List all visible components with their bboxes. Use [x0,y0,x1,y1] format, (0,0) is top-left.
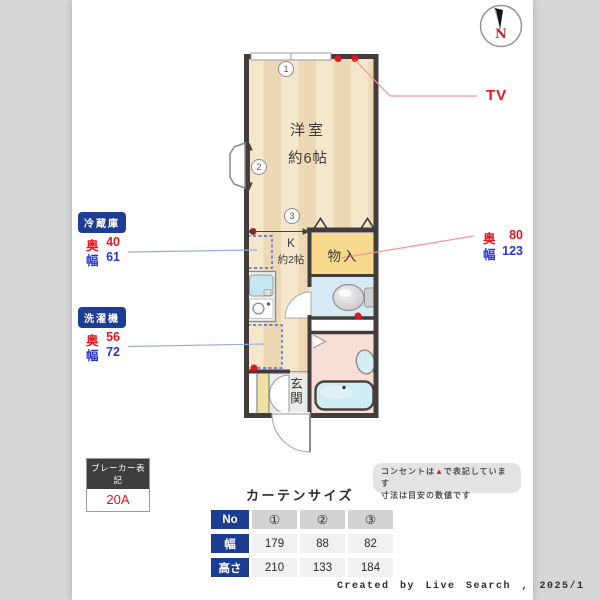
entry-door [272,412,310,452]
bathtub-fixture [316,382,374,410]
breaker-title: ブレーカー表記 [87,459,149,489]
western-room-label: 洋室 [268,119,348,140]
note-line-2: 寸法は目安の数値です [381,490,513,502]
table-cell: 88 [300,534,345,553]
faucet-icon [264,290,271,296]
table-cell: ① [252,510,297,529]
table-row-header: 幅 [211,534,249,553]
breaker-box: ブレーカー表記 20A [86,458,150,512]
table-cell: 133 [300,558,345,577]
compass-north-label: N [493,27,509,42]
entrance-label: 玄関 [286,377,305,406]
table-cell: ② [300,510,345,529]
fridge-width-label: 幅 [86,250,99,269]
fridge-width-value: 61 [106,250,120,269]
tv-callout-label: TV [486,87,507,104]
kitchen-label: K [271,238,311,250]
curtain-table-title: カーテンサイズ [230,485,370,504]
storage-width-row: 幅 123 [483,244,523,263]
window-marker-3: 3 [284,208,300,224]
toilet-fixture [333,285,377,311]
storage-width-label: 幅 [483,244,496,263]
table-cell: 179 [252,534,297,553]
window-marker-1: 1 [278,61,294,77]
washer-width-row: 幅 72 [86,345,120,364]
washer-width-label: 幅 [86,345,99,364]
table-cell: 210 [252,558,297,577]
storage-width-value: 123 [502,244,523,263]
storage-label: 物入 [311,245,375,265]
stove-burner-icon [253,303,264,314]
outlet-note: コンセントは▲で表記しています 寸法は目安の数値です [373,463,521,493]
washer-badge: 洗濯機 [78,307,126,328]
note-line-1: コンセントは▲で表記しています [381,466,513,490]
bath-drain-dot [342,386,345,389]
kitchen-unit [247,272,276,322]
western-room-size: 約6帖 [263,147,353,168]
table-cell: 184 [348,558,393,577]
fridge-badge: 冷蔵庫 [78,212,126,233]
fridge-leader-line [128,250,257,252]
window-1 [251,53,331,60]
table-cell: 82 [348,534,393,553]
window-marker-2: 2 [251,159,267,175]
washer-width-value: 72 [106,345,120,364]
table-row-header: 高さ [211,558,249,577]
fridge-width-row: 幅 61 [86,250,120,269]
credit-text: Created by Live Search , 2025/1 [337,581,585,592]
floorplan-page: N 洋室 約6帖 K 約2帖 物入 玄関 1 2 3 TV 奥 80 幅 123… [0,0,600,600]
table-row-header: No [211,510,249,529]
table-cell: ③ [348,510,393,529]
entrance-step [257,373,269,414]
washer-leader-line [128,344,264,347]
bay-window [230,143,245,188]
curtain-size-table: No ① ② ③ 幅 179 88 82 高さ 210 133 184 [211,510,393,577]
breaker-value: 20A [87,489,149,511]
outlet-triangle-glyph: ▲ [435,467,444,476]
